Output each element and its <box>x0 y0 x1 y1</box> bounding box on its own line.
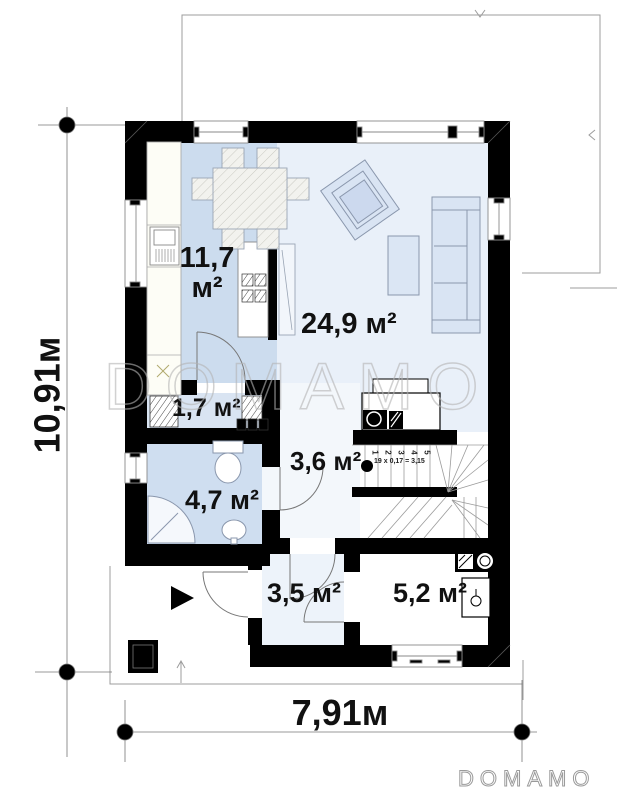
window-kitchen-left <box>125 200 147 287</box>
dimension-height-label: 10,91м <box>28 323 68 468</box>
coffee-table <box>388 236 419 295</box>
room-label-living: 24,9 м² <box>301 308 397 341</box>
door-entrance <box>203 572 248 617</box>
axis-marker-bottom-left <box>59 664 75 680</box>
stair-step-number: 4 <box>410 448 419 458</box>
window-living-right <box>488 198 510 240</box>
stair-step-number: 2 <box>384 448 393 458</box>
dimension-dot-left <box>117 724 133 740</box>
tv-cabinet <box>279 244 295 335</box>
window-living-top <box>357 121 484 143</box>
dining-chair <box>222 148 244 169</box>
toilet <box>213 441 243 483</box>
room-label-kitchen: 11,7 м² <box>162 243 252 304</box>
room-label-vestibule: 3,5 м² <box>267 578 341 609</box>
dining-chair <box>192 178 214 200</box>
watermark: DOMAMO <box>104 348 514 424</box>
boiler-stove <box>455 551 499 572</box>
axis-marker-top-left <box>59 117 75 133</box>
room-label-hall: 3,6 м² <box>290 446 361 477</box>
dining-chair <box>257 228 279 249</box>
window-utility-bottom <box>392 645 462 667</box>
stair-formula: 19 x 0,17 = 3,15 <box>374 458 425 465</box>
brand-logo: DOMAMO <box>458 766 595 792</box>
dining-chair <box>257 148 279 169</box>
room-label-utility: 5,2 м² <box>393 578 467 609</box>
stair-start-marker <box>361 460 373 472</box>
porch-column <box>128 640 158 673</box>
stair-step-number: 1 <box>371 448 380 458</box>
window-bath-left <box>125 453 147 483</box>
stair-step-number: 5 <box>423 448 432 458</box>
room-label-bath: 4,7 м² <box>185 485 259 516</box>
entrance-arrow-icon <box>171 586 194 610</box>
floor-plan: 11,7 м² 24,9 м² 1,7 м² 3,6 м² 4,7 м² 3,5… <box>0 0 617 800</box>
dining-chair <box>287 178 309 200</box>
stair-step-number: 3 <box>397 448 406 458</box>
dimension-dot-right <box>514 724 530 740</box>
sofa <box>432 197 480 333</box>
dining-table <box>213 168 287 229</box>
dimension-width-label: 7,91м <box>240 692 440 734</box>
window-kitchen-top <box>194 121 248 143</box>
